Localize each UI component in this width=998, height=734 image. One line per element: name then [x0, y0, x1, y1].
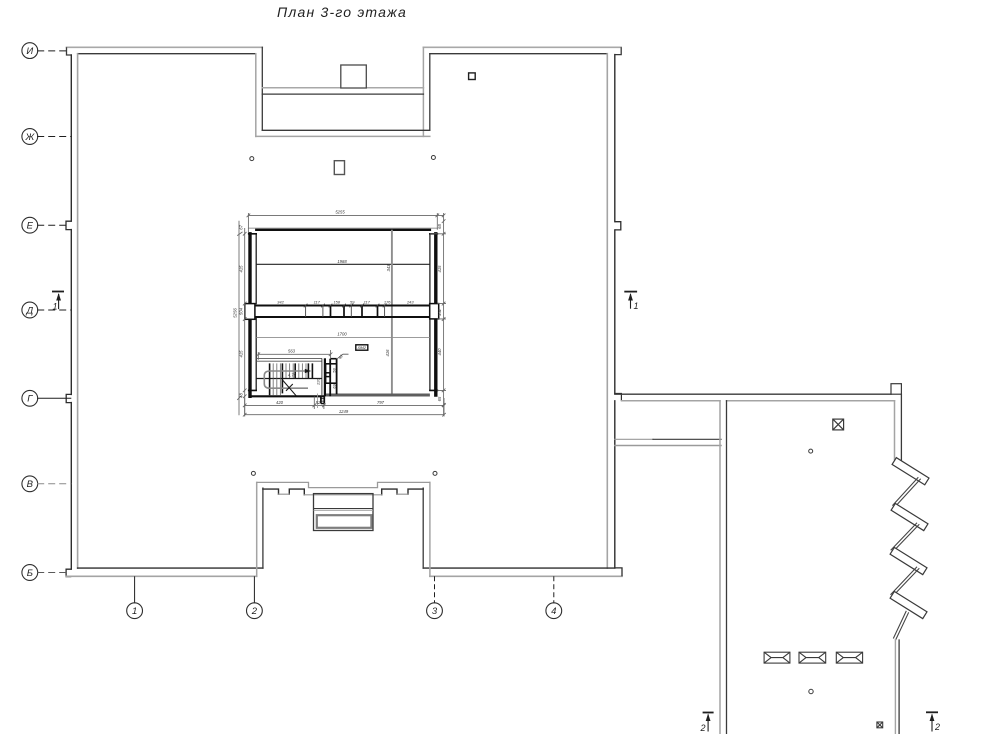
svg-text:4: 4: [551, 606, 556, 617]
svg-text:440: 440: [437, 348, 442, 356]
svg-text:416: 416: [385, 349, 390, 357]
svg-text:Д: Д: [25, 305, 33, 316]
svg-text:504: 504: [238, 307, 243, 315]
svg-text:Б: Б: [27, 568, 33, 579]
svg-text:52: 52: [316, 400, 321, 405]
svg-text:69: 69: [331, 384, 336, 389]
svg-text:2: 2: [700, 723, 706, 733]
svg-text:415: 415: [437, 265, 442, 273]
svg-text:68: 68: [437, 224, 442, 229]
svg-text:158: 158: [333, 300, 340, 305]
svg-text:797: 797: [377, 400, 385, 405]
svg-text:5256: 5256: [232, 308, 237, 318]
svg-text:Г: Г: [27, 394, 33, 405]
svg-text:3: 3: [432, 606, 438, 617]
svg-text:В: В: [27, 479, 34, 490]
svg-text:67: 67: [238, 224, 243, 229]
svg-text:48: 48: [238, 393, 243, 398]
svg-text:220: 220: [316, 377, 321, 385]
svg-text:152: 152: [437, 308, 442, 316]
svg-text:1700: 1700: [337, 332, 347, 337]
svg-text:1: 1: [53, 302, 58, 312]
svg-text:58: 58: [331, 368, 336, 373]
svg-text:343: 343: [386, 264, 391, 272]
svg-text:Е: Е: [27, 221, 34, 232]
svg-text:1: 1: [132, 606, 137, 617]
svg-text:План 3-го этажа: План 3-го этажа: [277, 4, 407, 20]
svg-text:2: 2: [934, 722, 940, 732]
svg-text:563: 563: [288, 348, 296, 353]
svg-text:243: 243: [406, 300, 414, 305]
svg-text:420: 420: [276, 400, 284, 405]
svg-text:5255: 5255: [335, 210, 345, 215]
svg-text:Ж: Ж: [24, 132, 35, 143]
svg-text:117: 117: [364, 300, 371, 305]
svg-text:415: 415: [238, 265, 243, 273]
svg-text:ЛМ2: ЛМ2: [357, 345, 367, 350]
svg-text:1988: 1988: [337, 259, 347, 264]
svg-text:1249: 1249: [339, 409, 349, 414]
svg-text:2: 2: [251, 606, 258, 617]
svg-text:176: 176: [384, 300, 391, 305]
svg-text:4.75: 4.75: [288, 373, 297, 378]
svg-text:415: 415: [238, 350, 243, 358]
svg-text:65: 65: [437, 396, 442, 401]
svg-text:342: 342: [277, 300, 284, 305]
svg-text:1: 1: [634, 301, 639, 311]
svg-text:И: И: [26, 46, 33, 57]
svg-text:117: 117: [314, 300, 321, 305]
